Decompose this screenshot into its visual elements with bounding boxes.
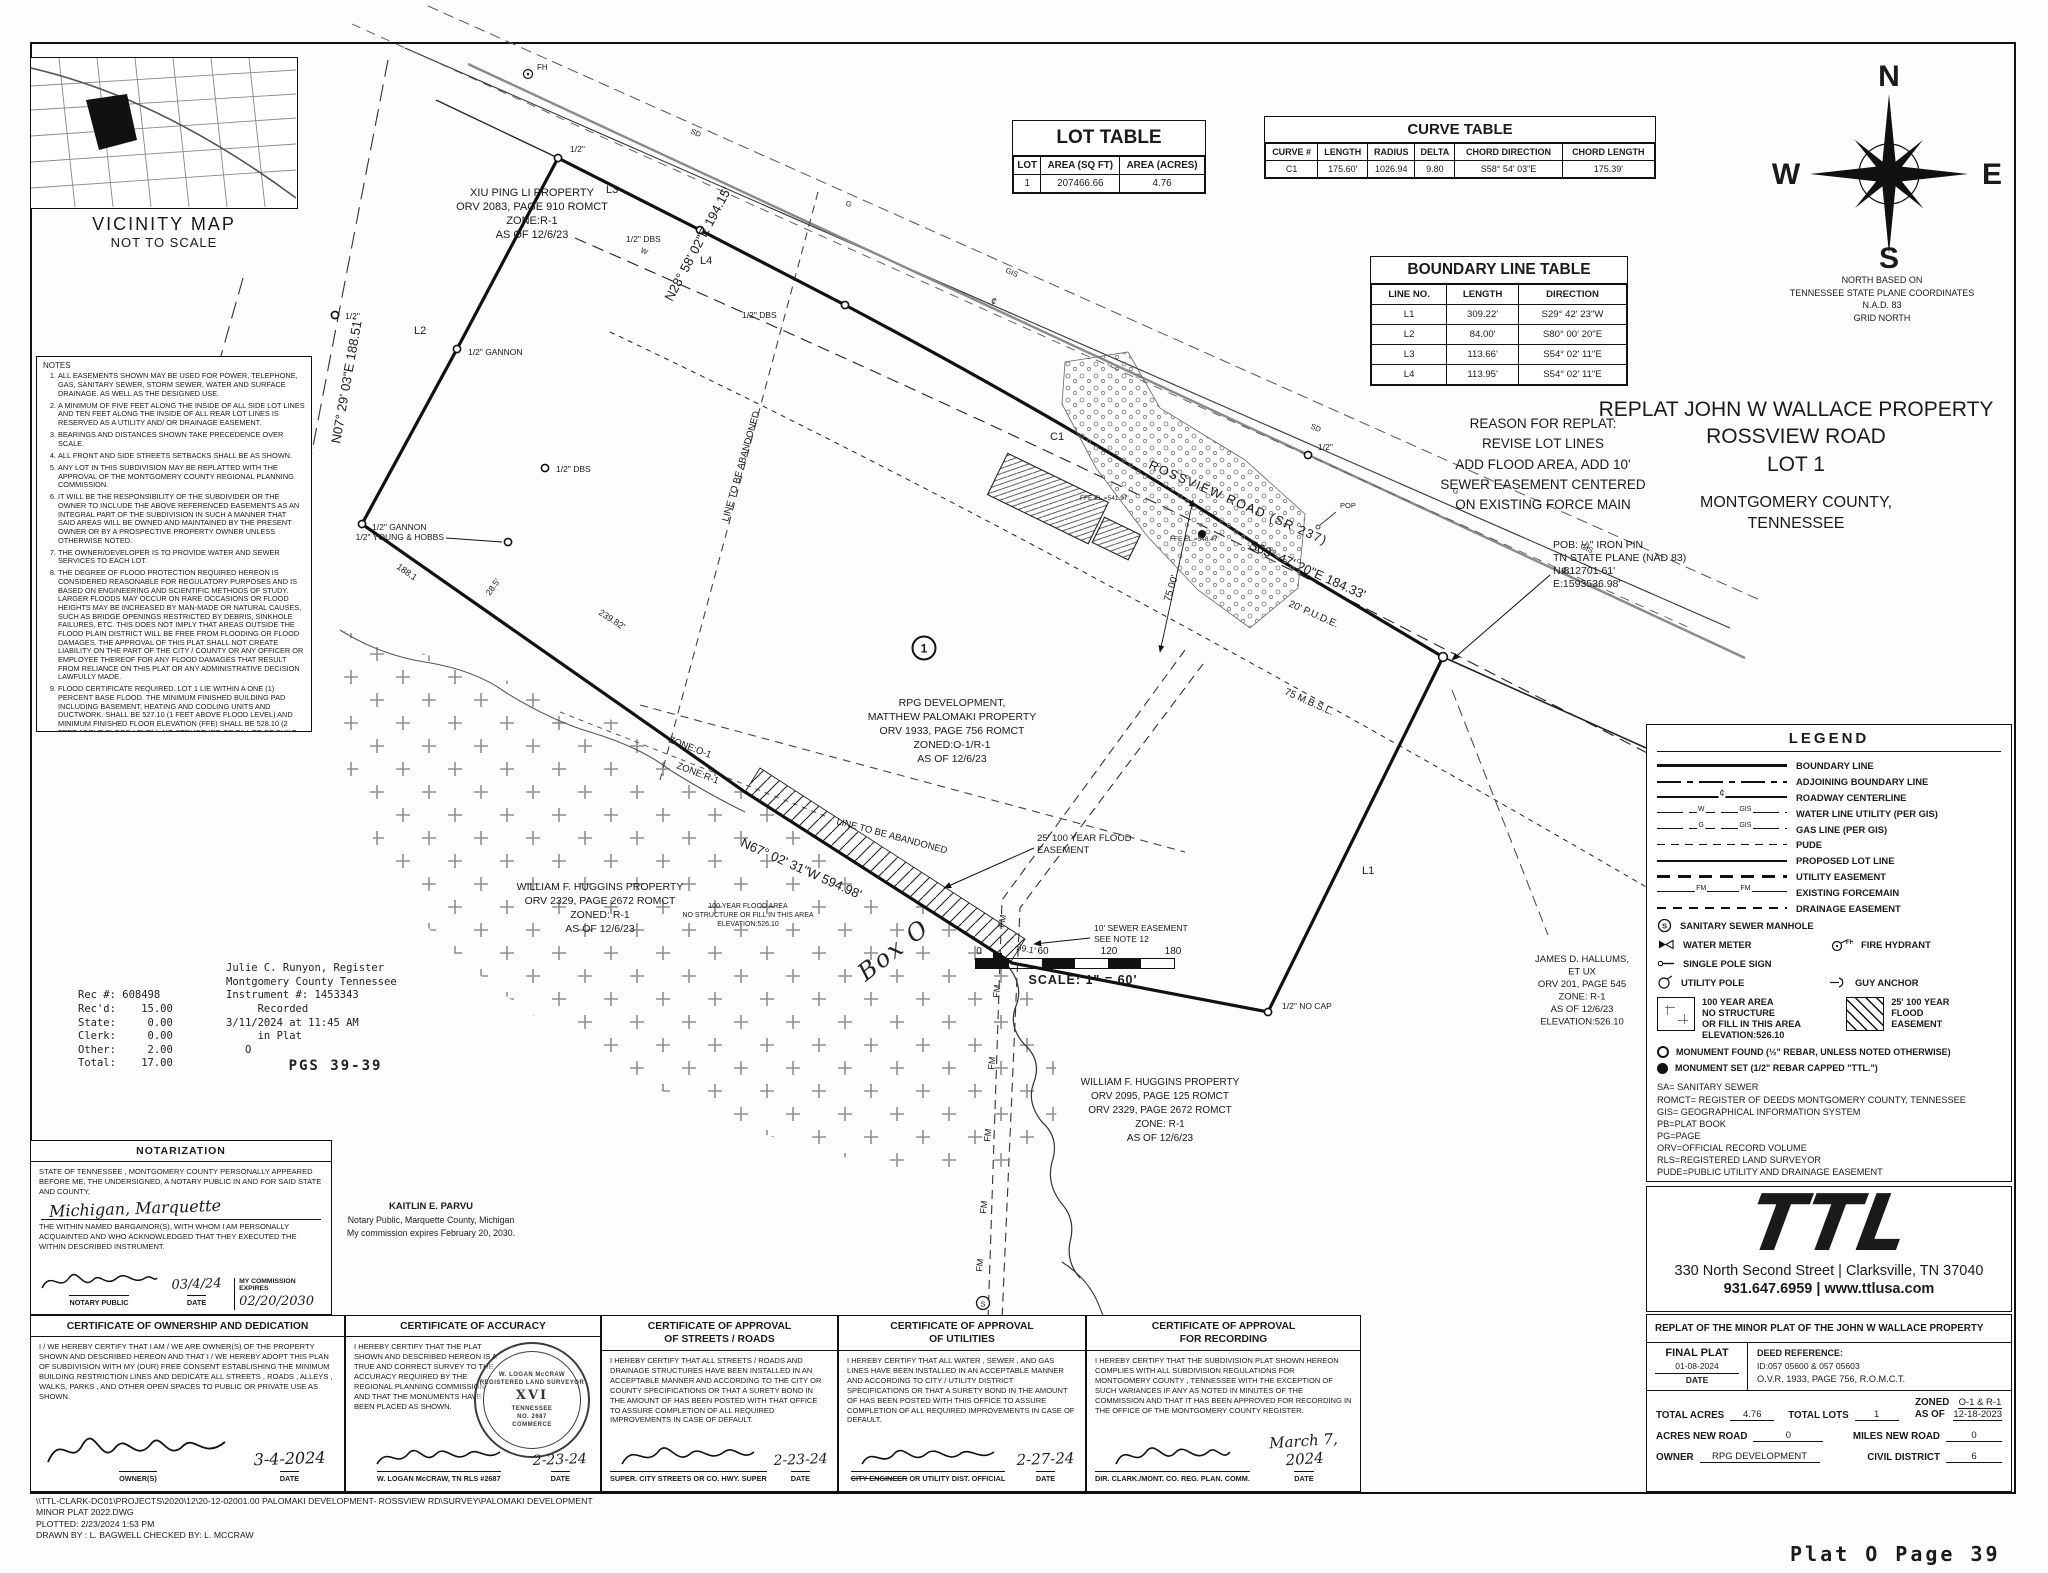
- svg-text:1/2" GANNON: 1/2" GANNON: [468, 347, 523, 357]
- mbsl-label: 75 M.B.S.L.: [1283, 687, 1335, 718]
- svg-text:ORV 2329, PAGE 2672 ROMCT: ORV 2329, PAGE 2672 ROMCT: [525, 895, 676, 907]
- huggins-south-label: WILLIAM F. HUGGINS PROPERTY ORV 2095, PA…: [1081, 1077, 1240, 1144]
- final-plat-date: 01-08-2024: [1655, 1361, 1739, 1374]
- svg-text:1/2": 1/2": [570, 144, 585, 154]
- lot-table: LOT TABLE LOTAREA (SQ FT)AREA (ACRES)120…: [1012, 120, 1206, 194]
- sheet-info-block: REPLAT OF THE MINOR PLAT OF THE JOHN W W…: [1646, 1314, 2012, 1492]
- legend-guy-anchor: GUY ANCHOR: [1829, 976, 2001, 989]
- deed-id: ID:057 05600 & 057 05603: [1757, 1360, 1905, 1372]
- svg-text:G: G: [844, 199, 853, 210]
- svg-text:1/2" YOUNG & HOBBS: 1/2" YOUNG & HOBBS: [356, 532, 445, 542]
- legend-lines: BOUNDARY LINEADJOINING BOUNDARY LINE¢ROA…: [1657, 758, 2001, 916]
- legend-flood-easement: 25' 100 YEARFLOODEASEMENT: [1846, 997, 2001, 1040]
- acres-new-road-value: 0: [1753, 1430, 1823, 1442]
- legend-abbreviations: SA= SANITARY SEWERROMCT= REGISTER OF DEE…: [1657, 1081, 2001, 1178]
- vicinity-title: VICINITY MAP: [30, 214, 298, 235]
- miles-new-road-value: 0: [1946, 1430, 2002, 1442]
- fire-hydrant-icon: FH: [1829, 937, 1853, 952]
- svg-text:ORV 2095, PAGE 125 ROMCT: ORV 2095, PAGE 125 ROMCT: [1091, 1091, 1229, 1102]
- diagonal-hatch-swatch: [1846, 997, 1884, 1031]
- svg-text:S: S: [1662, 921, 1667, 930]
- plat-title-county: MONTGOMERY COUNTY,: [1596, 492, 1996, 514]
- vicinity-map: [30, 57, 298, 209]
- svg-text:XIU PING LI PROPERTY: XIU PING LI PROPERTY: [470, 187, 595, 199]
- svg-text:FH: FH: [1846, 940, 1853, 946]
- svg-text:L1: L1: [1362, 865, 1374, 877]
- owner-value: RPG DEVELOPMENT: [1700, 1451, 1820, 1463]
- legend-line-item: GGISGAS LINE (PER GIS): [1657, 821, 2001, 837]
- svg-text:100 YEAR FLOOD AREA: 100 YEAR FLOOD AREA: [708, 903, 788, 910]
- utility-pole-icon: [1657, 975, 1673, 990]
- monument-found-icon: [1657, 1046, 1669, 1058]
- ttl-phone: 931.647.6959 | www.ttlusa.com: [1647, 1281, 2011, 1297]
- surveyor-signature: [374, 1442, 504, 1470]
- svg-text:GIS: GIS: [1004, 266, 1019, 279]
- lot-number: 1: [921, 642, 928, 656]
- certificate-utilities: CERTIFICATE OF APPROVAL OF UTILITIES I H…: [838, 1315, 1086, 1492]
- svg-text:SD: SD: [1309, 422, 1323, 435]
- surveyor-date-handwritten: 2-23-24: [528, 1451, 592, 1469]
- pude-label: 20' P.U.D.E.: [1287, 599, 1340, 631]
- notes-panel: NOTES ALL EASEMENTS SHOWN MAY BE USED FO…: [36, 356, 312, 732]
- project-title: REPLAT OF THE MINOR PLAT OF THE JOHN W W…: [1647, 1315, 2011, 1343]
- vicinity-site-marker: [86, 94, 137, 150]
- total-lots-value: 1: [1855, 1409, 1899, 1421]
- svg-text:ORV 201, PAGE 545: ORV 201, PAGE 545: [1538, 979, 1626, 990]
- notes-list: ALL EASEMENTS SHOWN MAY BE USED FOR POWE…: [43, 372, 305, 732]
- ffe-label-2: FFE EL.=548.47': [1170, 536, 1219, 543]
- streets-signature: [618, 1440, 758, 1470]
- curve-table-title: CURVE TABLE: [1265, 117, 1655, 143]
- svg-text:1/2" NO CAP: 1/2" NO CAP: [1282, 1001, 1332, 1011]
- dim-28-5: 28.5': [483, 576, 502, 597]
- recording-date-handwritten: March 7, 2024: [1255, 1429, 1353, 1472]
- svg-text:EASEMENT: EASEMENT: [1037, 845, 1089, 856]
- svg-text:TN STATE PLANE (NAD 83): TN STATE PLANE (NAD 83): [1553, 552, 1686, 564]
- notes-title: NOTES: [43, 361, 305, 370]
- plat-title-line1: REPLAT JOHN W WALLACE PROPERTY: [1596, 396, 1996, 423]
- certificate-ownership: CERTIFICATE OF OWNERSHIP AND DEDICATION …: [30, 1315, 345, 1492]
- svg-text:C1: C1: [1050, 431, 1064, 443]
- legend-line-item: PROPOSED LOT LINE: [1657, 853, 2001, 869]
- notary-stamp-text: KAITLIN E. PARVU Notary Public, Marquett…: [336, 1200, 526, 1241]
- ttl-logo: TTL: [1641, 1189, 2018, 1261]
- svg-text:SEE NOTE 12: SEE NOTE 12: [1094, 934, 1149, 944]
- scale-bar: 0 60 120 180 SCALE: 1" = 60': [975, 946, 1191, 987]
- svg-text:AS OF 12/6/23: AS OF 12/6/23: [496, 229, 569, 241]
- zoned-asof-value: 12-18-2023: [1953, 1409, 2002, 1421]
- certificate-recording: CERTIFICATE OF APPROVAL FOR RECORDING I …: [1086, 1315, 1361, 1492]
- ttl-logo-block: TTL 330 North Second Street | Clarksvill…: [1646, 1186, 2012, 1312]
- legend-100yr-area: 100 YEAR AREANO STRUCTUREOR FILL IN THIS…: [1657, 997, 1846, 1040]
- register-stamp: Julie C. Runyon, RegisterMontgomery Coun…: [78, 962, 408, 1076]
- legend-manhole: S SANITARY SEWER MANHOLE: [1657, 916, 2001, 935]
- legend-line-item: PUDE: [1657, 837, 2001, 853]
- deed-ovr: O.V.R. 1933, PAGE 756, R.O.M.C.T.: [1757, 1373, 1905, 1386]
- streets-date-handwritten: 2-23-24: [772, 1451, 830, 1469]
- dim-188-1: 188.1: [395, 561, 419, 582]
- svg-text:SD: SD: [689, 127, 703, 140]
- legend-title: LEGEND: [1657, 730, 2001, 752]
- svg-text:E:1593536.98': E:1593536.98': [1553, 578, 1620, 590]
- svg-text:ZONE:R-1: ZONE:R-1: [506, 215, 557, 227]
- certificate-streets: CERTIFICATE OF APPROVAL OF STREETS / ROA…: [601, 1315, 838, 1492]
- svg-text:FM: FM: [996, 914, 1008, 929]
- compass-rose: N W E S: [1772, 56, 2006, 270]
- notary-date-handwritten: 03/4/24: [163, 1276, 231, 1293]
- road-south-edge-ext: [436, 100, 558, 158]
- svg-text:FM: FM: [974, 1258, 985, 1272]
- vicinity-street-lines: [31, 58, 296, 207]
- svg-text:ORV 2083, PAGE 910 ROMCT: ORV 2083, PAGE 910 ROMCT: [456, 201, 608, 213]
- compass-e: E: [1982, 158, 2002, 191]
- svg-text:AS OF 12/6/23: AS OF 12/6/23: [565, 923, 635, 935]
- single-pole-sign-icon: [1657, 959, 1675, 968]
- flood-easement-label: 25' 100 YEAR FLOOD EASEMENT: [1037, 833, 1132, 856]
- sewer-easement-label: 10' SEWER EASEMENT SEE NOTE 12: [1094, 923, 1188, 944]
- monument-set-dot: [1198, 530, 1206, 538]
- compass-w: W: [1772, 158, 1801, 191]
- recording-signature: [1112, 1440, 1232, 1470]
- plat-title: REPLAT JOHN W WALLACE PROPERTY ROSSVIEW …: [1596, 396, 1996, 535]
- svg-text:WILLIAM F. HUGGINS PROPERTY: WILLIAM F. HUGGINS PROPERTY: [517, 881, 684, 893]
- surveyor-seal: W. LOGAN McCRAW REGISTERED LAND SURVEYOR…: [474, 1342, 590, 1458]
- owner-signature: [43, 1430, 233, 1470]
- svg-text:WILLIAM F. HUGGINS PROPERTY: WILLIAM F. HUGGINS PROPERTY: [1081, 1077, 1240, 1088]
- abandoned-label-1: LINE TO BE ABANDONED: [720, 410, 762, 523]
- deed-reference-cell: DEED REFERENCE: ID:057 05600 & 057 05603…: [1748, 1343, 1914, 1390]
- svg-text:JAMES D. HALLUMS,: JAMES D. HALLUMS,: [1535, 954, 1629, 965]
- pob-block: POB: ½" IRON PIN TN STATE PLANE (NAD 83)…: [1553, 539, 1686, 590]
- total-acres-value: 4.76: [1730, 1409, 1774, 1421]
- svg-text:FM: FM: [982, 1128, 993, 1142]
- svg-text:10' SEWER EASEMENT: 10' SEWER EASEMENT: [1094, 923, 1188, 933]
- svg-text:1/2" DBS: 1/2" DBS: [626, 234, 661, 244]
- notarization-panel: NOTARIZATION STATE OF TENNESSEE , MONTGO…: [30, 1140, 332, 1315]
- monument-set-icon: [1657, 1063, 1668, 1074]
- fh-label: FH: [537, 63, 548, 72]
- water-meter-icon: [1657, 939, 1675, 950]
- bearing-ne: N28° 58' 02"E 194.15': [661, 184, 734, 303]
- svg-text:1/2": 1/2": [1318, 442, 1333, 452]
- svg-text:MATTHEW PALOMAKI PROPERTY: MATTHEW PALOMAKI PROPERTY: [868, 711, 1037, 723]
- centerline-symbol: ¢: [989, 296, 999, 308]
- plat-title-state: TENNESSEE: [1596, 513, 1996, 535]
- svg-text:AS OF 12/6/23: AS OF 12/6/23: [1551, 1004, 1614, 1015]
- notarization-title: NOTARIZATION: [31, 1141, 331, 1162]
- owner-date-handwritten: 3-4-2024: [243, 1447, 337, 1469]
- svg-text:POB: ½" IRON PIN: POB: ½" IRON PIN: [1553, 539, 1643, 551]
- ffe-label-1: FFE EL.=541.97': [1080, 495, 1129, 502]
- svg-text:AS OF 12/6/23: AS OF 12/6/23: [1127, 1133, 1194, 1144]
- legend-line-item: DRAINAGE EASEMENT: [1657, 900, 2001, 916]
- svg-text:ZONE: R-1: ZONE: R-1: [1559, 992, 1606, 1003]
- svg-text:ET UX: ET UX: [1568, 967, 1596, 978]
- civil-district-value: 6: [1946, 1451, 2002, 1463]
- adjoining-line-1: [303, 60, 388, 498]
- svg-text:FM: FM: [986, 1056, 997, 1070]
- svg-text:1/2": 1/2": [345, 311, 360, 321]
- plus-hatch-swatch: [1657, 997, 1695, 1031]
- curve-table: CURVE TABLE CURVE #LENGTHRADIUSDELTACHOR…: [1264, 116, 1656, 179]
- utilities-signature: [858, 1442, 998, 1470]
- commission-expiry-handwritten: 02/20/2030: [239, 1294, 314, 1309]
- sanitary-sewer-manhole-icon: S: [1657, 918, 1672, 933]
- bearing-west: N07° 29' 03"E 188.51': [328, 317, 365, 445]
- plat-sheet: SD G GIS W SD G GIS ¢ ¢ FM FM: [0, 0, 2048, 1573]
- compass-star: [1810, 94, 1968, 254]
- file-path-footer: \\TTL-CLARK-DC01\PROJECTS\2020\12\20-12-…: [36, 1496, 936, 1542]
- xiu-parcel-label: XIU PING LI PROPERTY ORV 2083, PAGE 910 …: [456, 187, 608, 241]
- legend-utility-pole: UTILITY POLE: [1657, 975, 1829, 990]
- legend-monument-set: MONUMENT SET (1/2" REBAR CAPPED "TTL."): [1657, 1060, 2001, 1076]
- legend-fire-hydrant: FH FIRE HYDRANT: [1829, 937, 2001, 952]
- svg-text:ZONE: R-1: ZONE: R-1: [1135, 1119, 1185, 1130]
- legend-monument-found: MONUMENT FOUND (½" REBAR, UNLESS NOTED O…: [1657, 1044, 2001, 1060]
- svg-text:ZONED:O-1/R-1: ZONED:O-1/R-1: [913, 739, 990, 751]
- legend-line-item: WGISWATER LINE UTILITY (PER GIS): [1657, 805, 2001, 821]
- compass-caption: NORTH BASED ONTENNESSEE STATE PLANE COOR…: [1732, 274, 2032, 324]
- guy-anchor-icon: [1829, 976, 1847, 989]
- compass-n: N: [1878, 60, 1900, 93]
- svg-text:ZONED: R-1: ZONED: R-1: [570, 909, 630, 921]
- vicinity-subtitle: NOT TO SCALE: [30, 235, 298, 250]
- final-plat-cell: FINAL PLAT 01-08-2024 DATE: [1647, 1343, 1748, 1390]
- lot-table-title: LOT TABLE: [1013, 121, 1205, 156]
- svg-text:S: S: [980, 1300, 985, 1309]
- svg-text:ELEVATION:526.10: ELEVATION:526.10: [717, 921, 779, 928]
- legend-water-meter: WATER METER: [1657, 939, 1829, 950]
- legend-panel: LEGEND BOUNDARY LINEADJOINING BOUNDARY L…: [1646, 724, 2012, 1182]
- zoned-value: O-1 & R-1: [1958, 1397, 2002, 1409]
- gravel-drive: [1062, 352, 1305, 628]
- adjoining-line-3: [1452, 690, 1548, 935]
- notary-signature: [39, 1268, 159, 1294]
- hallums-label: JAMES D. HALLUMS, ET UX ORV 201, PAGE 54…: [1535, 954, 1629, 1028]
- boundary-line-table: BOUNDARY LINE TABLE LINE NO.LENGTHDIRECT…: [1370, 256, 1628, 386]
- svg-text:L4: L4: [700, 255, 712, 267]
- legend-pole-sign: SINGLE POLE SIGN: [1657, 954, 2001, 973]
- pop-label: POP: [1340, 501, 1356, 510]
- svg-text:ELEVATION:526.10: ELEVATION:526.10: [1540, 1017, 1624, 1028]
- notary-handwritten-name: Michigan, Marquette: [41, 1196, 222, 1221]
- legend-line-item: FMFMEXISTING FORCEMAIN: [1657, 884, 2001, 900]
- dim-75: 75.00': [1162, 574, 1180, 603]
- plat-title-line3: LOT 1: [1596, 451, 1996, 478]
- svg-text:1/2" DBS: 1/2" DBS: [556, 464, 591, 474]
- svg-text:W: W: [639, 246, 650, 257]
- rpg-parcel-label: RPG DEVELOPMENT, MATTHEW PALOMAKI PROPER…: [868, 697, 1037, 765]
- scale-caption: SCALE: 1" = 60': [975, 973, 1191, 987]
- dim-239-82: 239.82': [597, 607, 627, 631]
- svg-text:AS OF 12/6/23: AS OF 12/6/23: [917, 753, 987, 765]
- scale-bar-graphic: [975, 958, 1175, 969]
- plat-title-line2: ROSSVIEW ROAD: [1596, 423, 1996, 450]
- boundary-table-title: BOUNDARY LINE TABLE: [1371, 257, 1627, 284]
- svg-text:FM: FM: [978, 1200, 989, 1214]
- svg-text:1/2" GANNON: 1/2" GANNON: [372, 522, 427, 532]
- certificate-accuracy: CERTIFICATE OF ACCURACY I HEREBY CERTIFY…: [345, 1315, 601, 1492]
- svg-text:ORV 2329, PAGE 2672 ROMCT: ORV 2329, PAGE 2672 ROMCT: [1088, 1105, 1232, 1116]
- legend-line-item: ¢ROADWAY CENTERLINE: [1657, 790, 2001, 806]
- svg-text:N:812701.61': N:812701.61': [1553, 565, 1615, 577]
- svg-text:RPG DEVELOPMENT,: RPG DEVELOPMENT,: [899, 697, 1006, 709]
- legend-line-item: UTILITY EASEMENT: [1657, 869, 2001, 885]
- legend-line-item: ADJOINING BOUNDARY LINE: [1657, 774, 2001, 790]
- plat-page-label: Plat O Page 39: [1790, 1542, 2001, 1566]
- svg-text:ORV 1933, PAGE 756 ROMCT: ORV 1933, PAGE 756 ROMCT: [880, 725, 1026, 737]
- utilities-date-handwritten: 2-27-24: [1014, 1449, 1078, 1469]
- legend-line-item: BOUNDARY LINE: [1657, 758, 2001, 774]
- svg-text:L3: L3: [606, 184, 618, 196]
- svg-text:1/2" DBS: 1/2" DBS: [742, 310, 777, 320]
- svg-text:NO STRUCTURE OR FILL IN THIS A: NO STRUCTURE OR FILL IN THIS AREA: [682, 912, 813, 919]
- svg-text:25' 100 YEAR FLOOD: 25' 100 YEAR FLOOD: [1037, 833, 1132, 844]
- svg-text:L2: L2: [414, 325, 426, 337]
